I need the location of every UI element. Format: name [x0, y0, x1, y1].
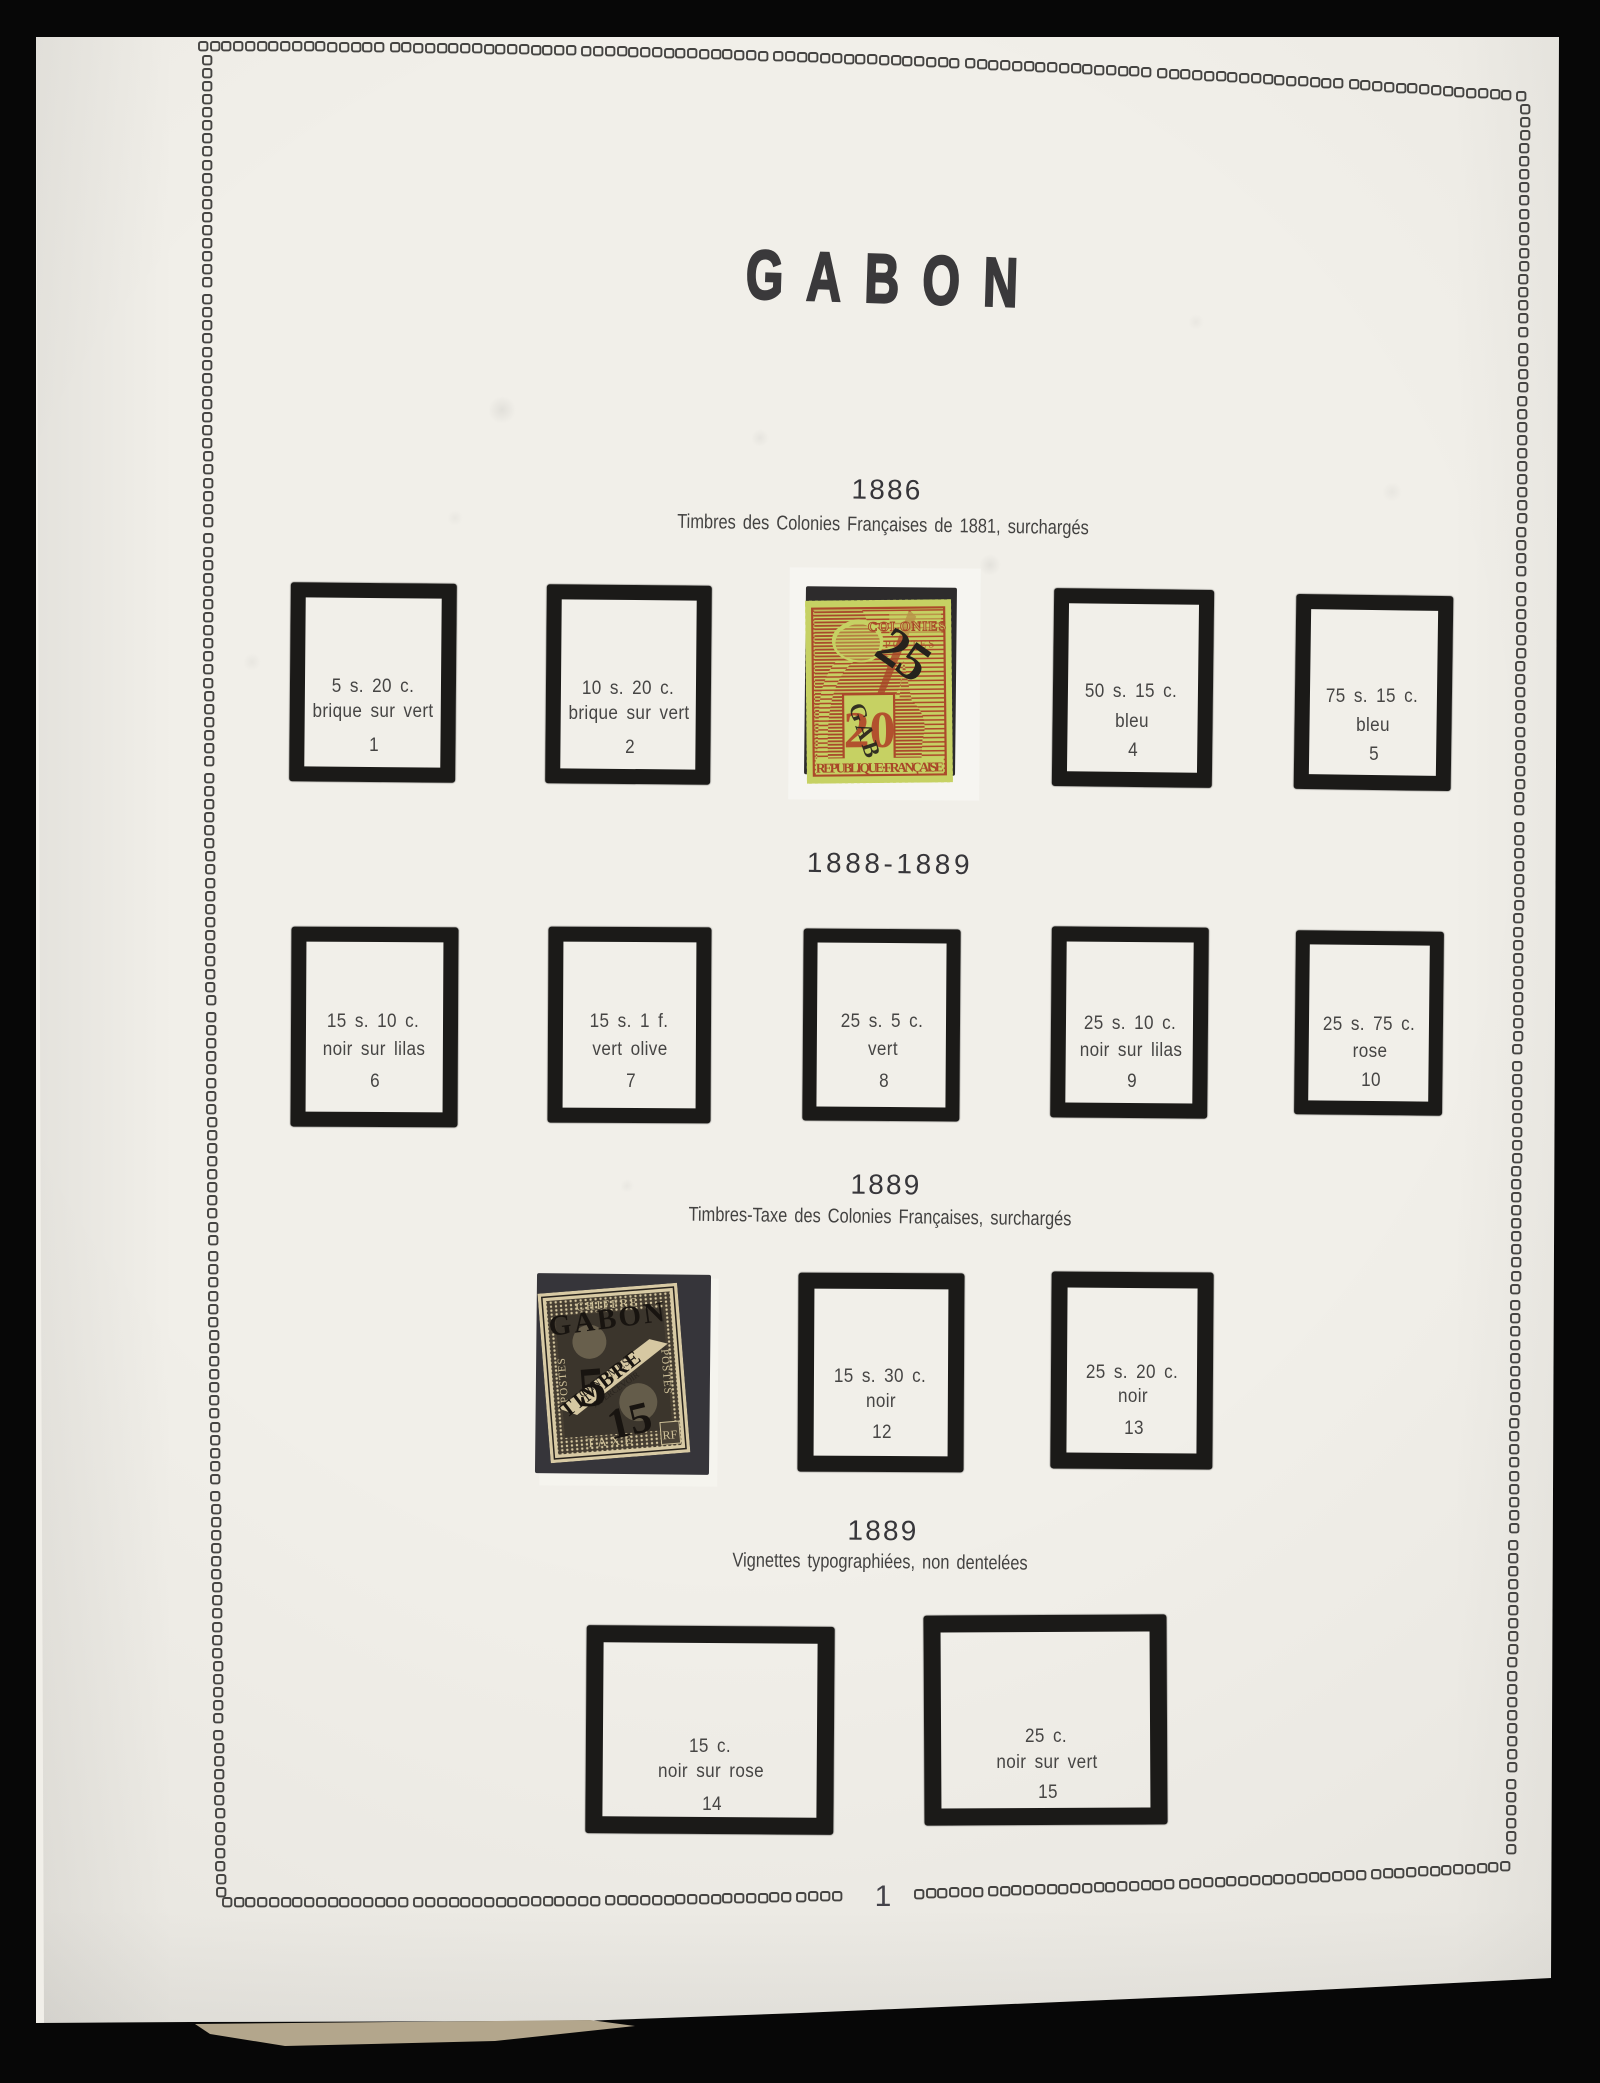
- svg-text:RF: RF: [662, 1427, 678, 1442]
- svg-text:REPUBLIQUE·FRANÇAISE: REPUBLIQUE·FRANÇAISE: [816, 759, 944, 775]
